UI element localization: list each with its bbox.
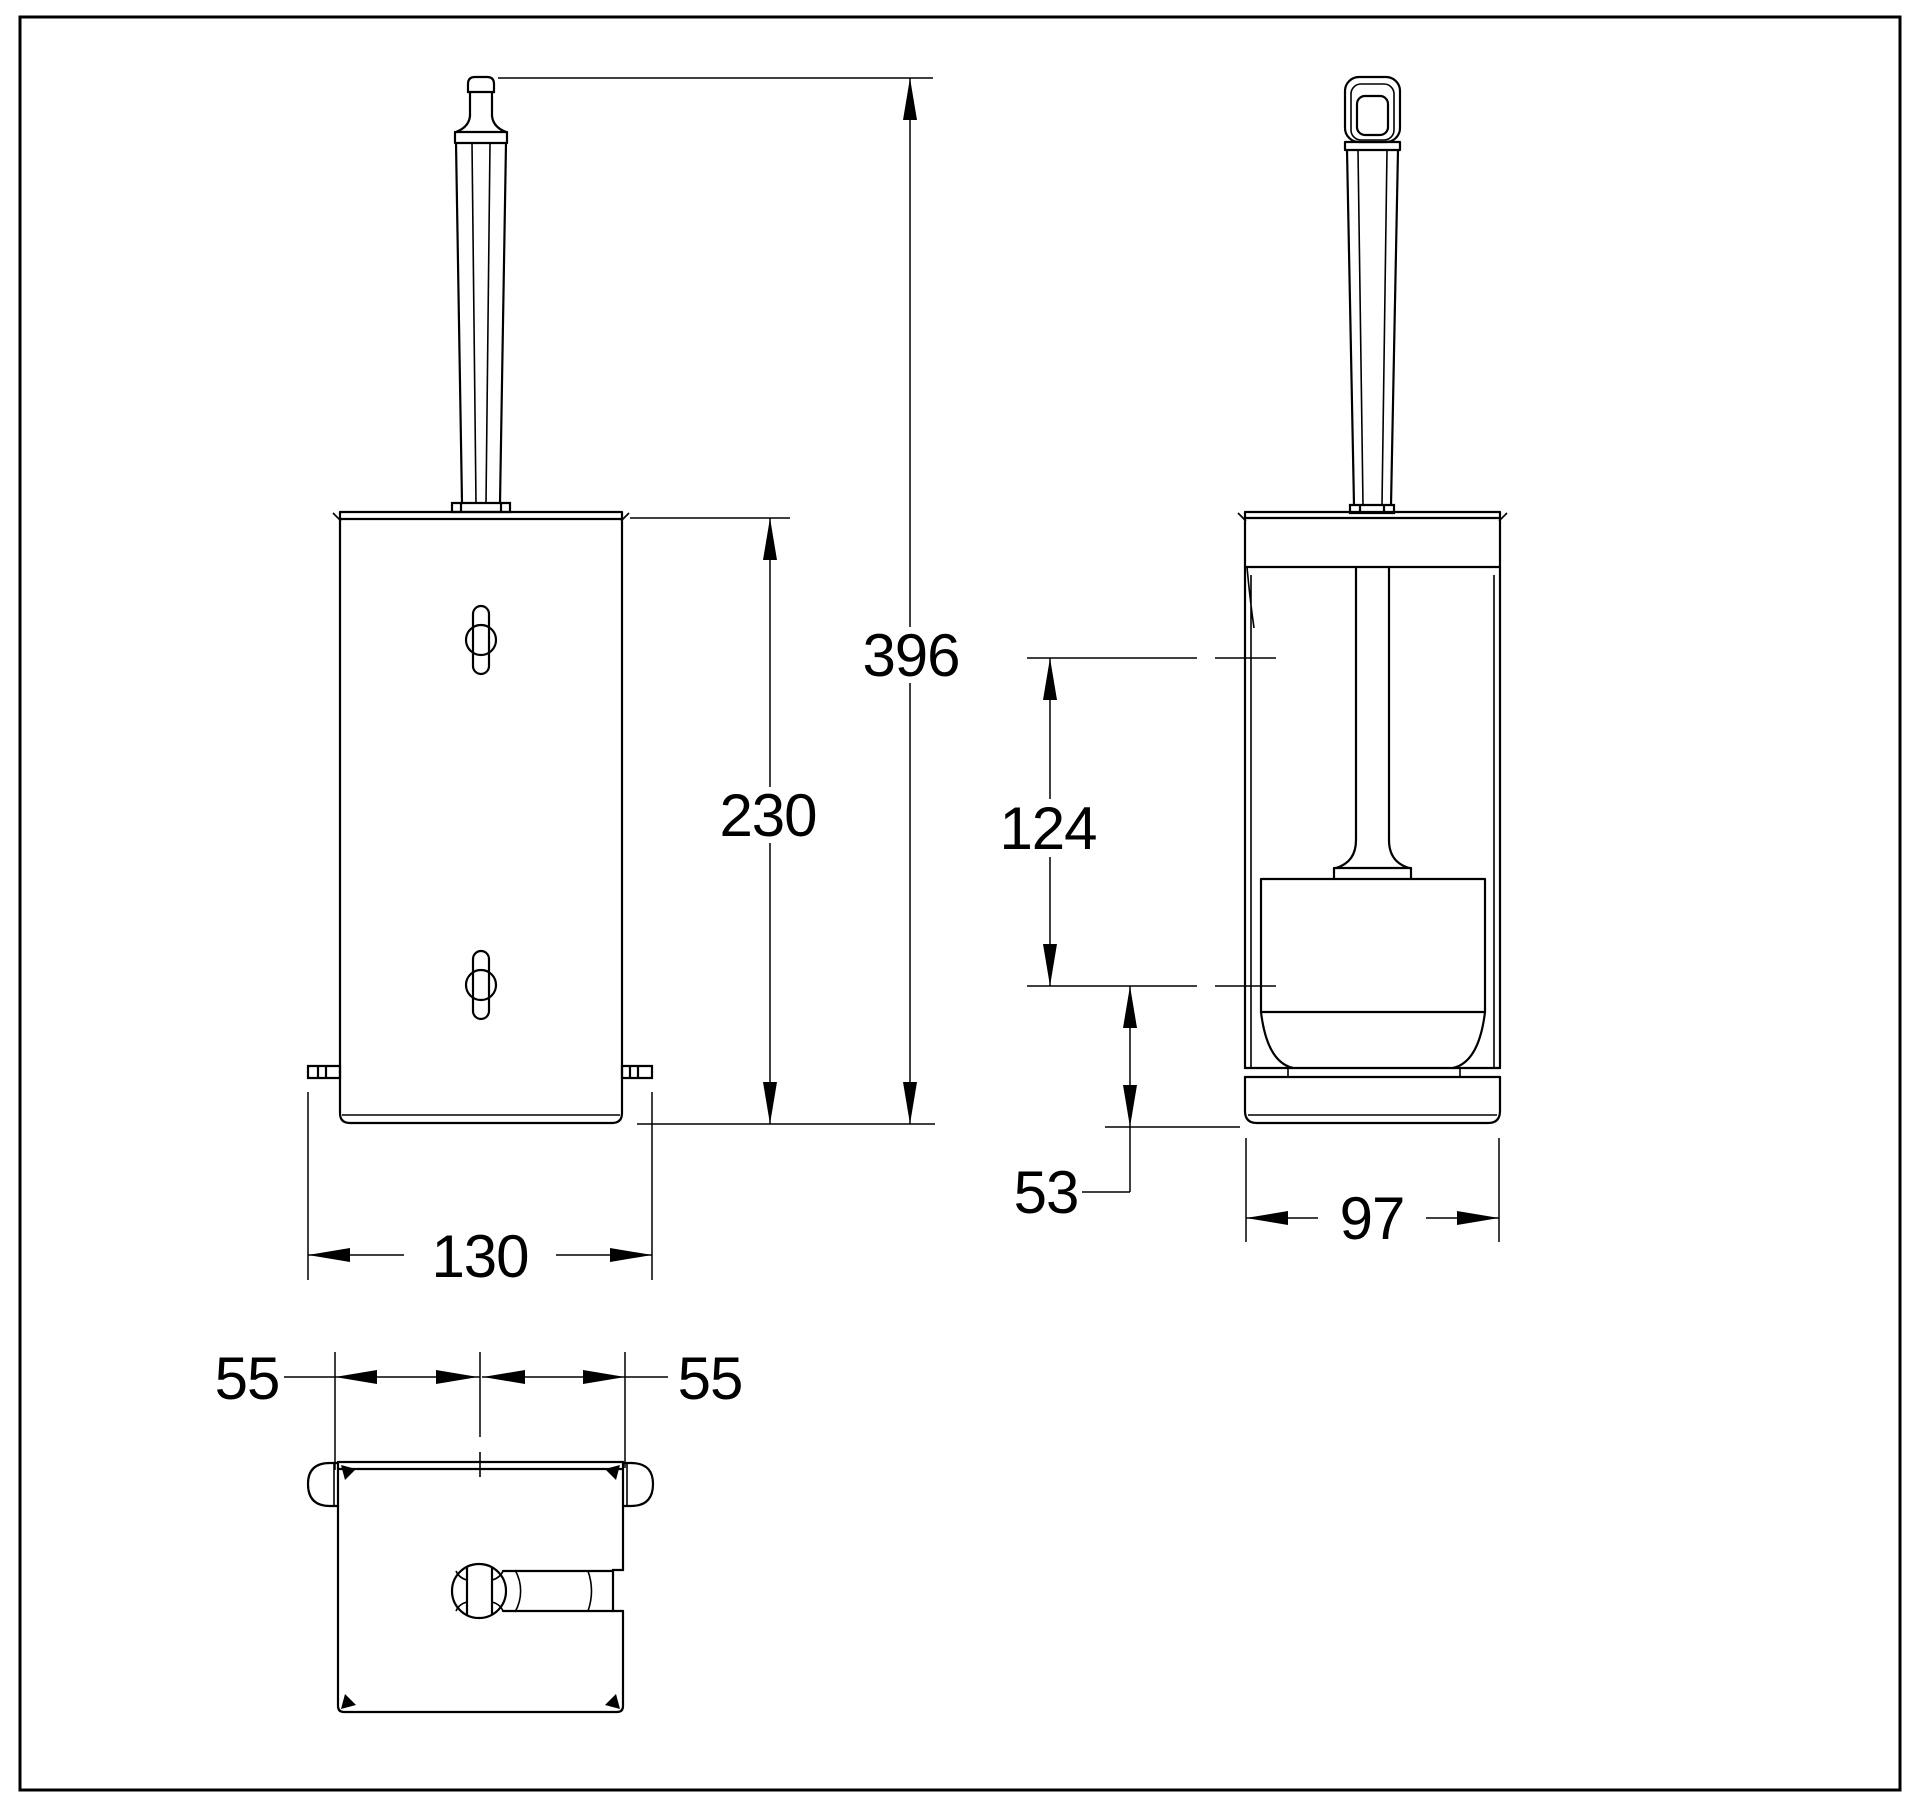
dim-230-label: 230 <box>719 782 816 849</box>
page-background <box>0 0 1920 1808</box>
dim-130-label: 130 <box>431 1223 528 1290</box>
dim-396-label: 396 <box>862 622 959 689</box>
dim-55-left-label: 55 <box>215 1345 280 1412</box>
toilet-brush-holder-drawing: 396 230 124 53 130 <box>0 0 1920 1808</box>
dim-97-label: 97 <box>1340 1185 1405 1252</box>
dim-53-label: 53 <box>1014 1159 1079 1226</box>
dim-124-label: 124 <box>999 795 1096 862</box>
dim-55-right-label: 55 <box>678 1345 743 1412</box>
technical-drawing-page: 396 230 124 53 130 <box>0 0 1920 1808</box>
